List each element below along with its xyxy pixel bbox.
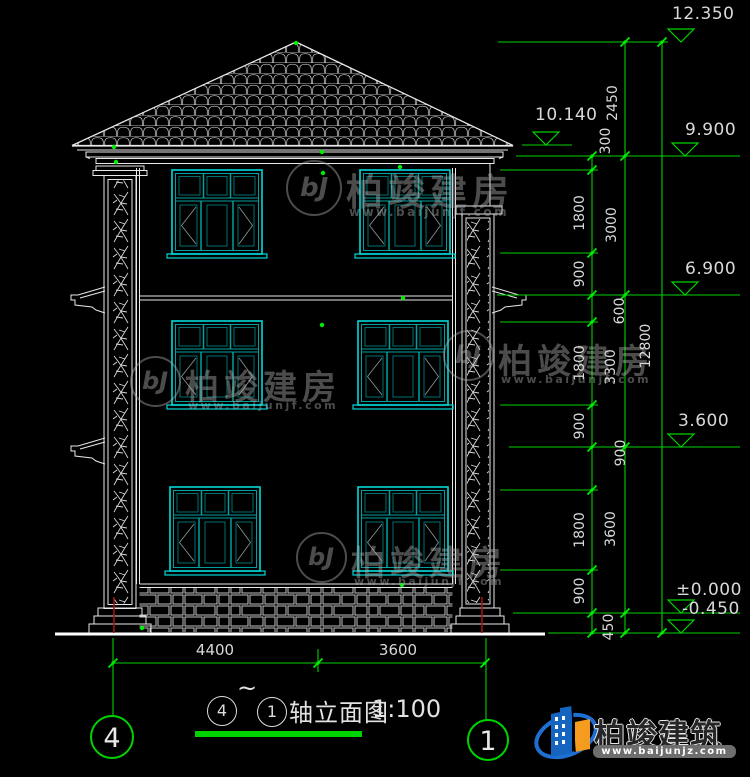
dim-value: 900: [573, 578, 587, 605]
dim-value: 2450: [606, 85, 620, 121]
dim-value: 900: [614, 440, 628, 467]
brand-url: www.baijunjz.com: [593, 745, 736, 758]
title-axis-circle-end: 1: [257, 697, 287, 727]
watermark: bJ 柏竣建房 www.baijunjf.com: [130, 356, 350, 416]
dim-value: 3600: [363, 643, 433, 658]
watermark: bJ 柏竣建房 www.baijunjf.com: [443, 330, 663, 390]
elevation-value: 12.350: [672, 6, 734, 23]
watermark: bJ 柏竣建房 www.baijunjf.com: [296, 532, 516, 592]
elevation-value: ±0.000: [676, 582, 742, 599]
grid-bubble-right: 1: [466, 726, 510, 757]
dim-value: 600: [613, 298, 627, 325]
title-underline: [195, 731, 362, 737]
elevation-value: 10.140: [535, 107, 597, 124]
dim-value: 3600: [604, 511, 618, 547]
dim-value: 900: [573, 413, 587, 440]
watermark-monogram: bJ: [455, 341, 481, 369]
watermark-url: www.baijunjf.com: [188, 399, 338, 412]
cad-elevation-canvas: bJ 柏竣建房 www.baijunjf.com bJ 柏竣建房 www.bai…: [0, 0, 750, 777]
dim-value: 1800: [573, 345, 587, 381]
title-axis-circle-start: 4: [207, 696, 237, 726]
dim-overall: 12800: [639, 324, 653, 369]
dim-value: 300: [599, 128, 613, 155]
elevation-value: 3.600: [678, 413, 729, 430]
brand-logo-mark: [530, 706, 602, 765]
dim-value: 450: [602, 614, 616, 641]
grid-bubble-left: 4: [90, 723, 134, 754]
hip-roof: [72, 42, 513, 150]
watermark-url: www.baijunjf.com: [354, 575, 504, 588]
dim-value: 900: [573, 261, 587, 288]
dim-value: 1800: [573, 512, 587, 548]
watermark-url: www.baijunjf.com: [349, 205, 509, 219]
elevation-value: 9.900: [685, 122, 736, 139]
dim-value: 3000: [605, 207, 619, 243]
dim-value: 3300: [604, 349, 618, 385]
elevation-value: 6.900: [685, 261, 736, 278]
watermark-monogram: bJ: [308, 543, 334, 571]
watermark-monogram: bJ: [142, 367, 168, 395]
dim-value: 1800: [573, 195, 587, 231]
drawing-scale: 1:100: [372, 695, 441, 723]
watermark-monogram: bJ: [300, 173, 328, 203]
elevation-value: -0.450: [682, 601, 740, 618]
dim-value: 4400: [180, 643, 250, 658]
title-tilde: ~: [237, 676, 257, 700]
watermark: bJ 柏竣建房 www.baijunjf.com: [286, 160, 536, 230]
